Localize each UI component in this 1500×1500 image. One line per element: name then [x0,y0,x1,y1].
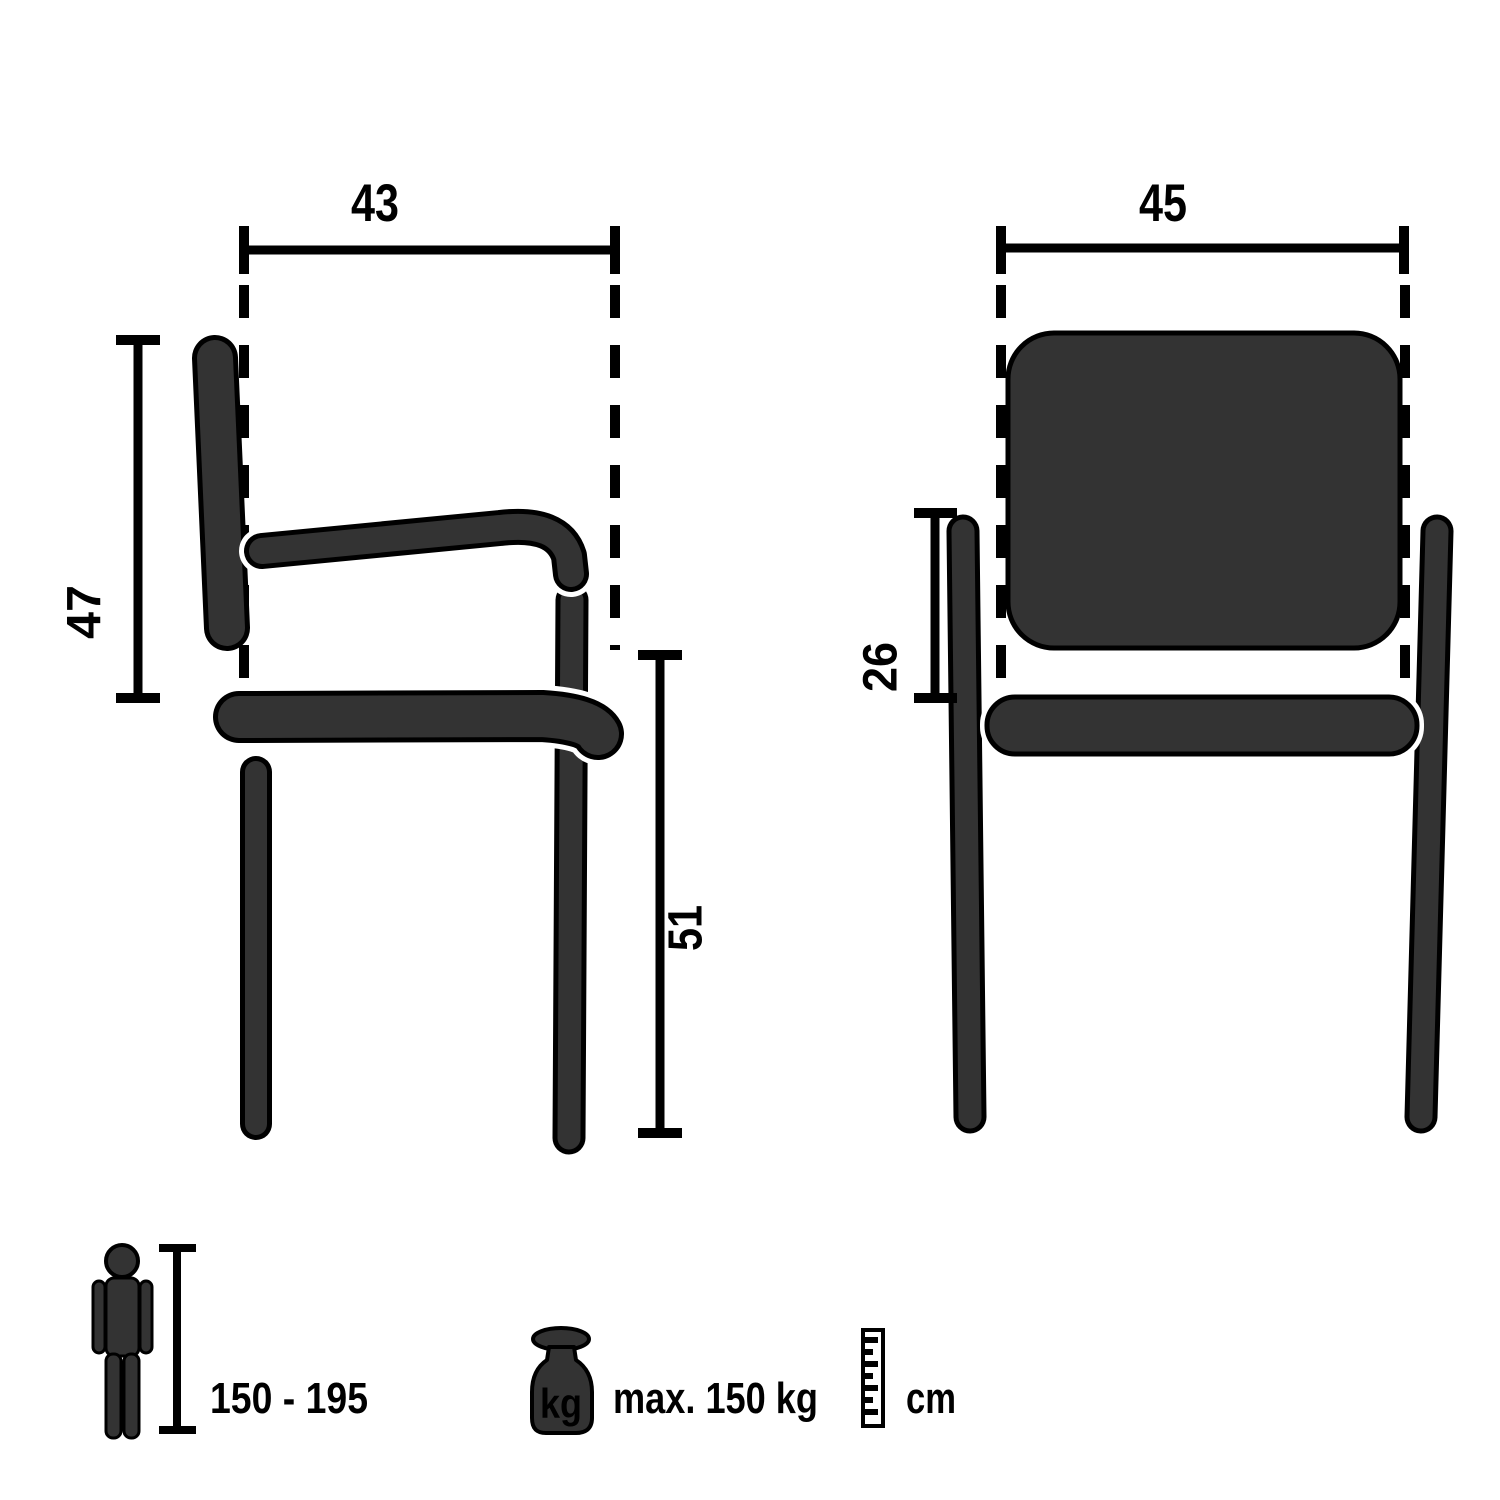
person-torso [106,1278,139,1356]
weight-icon: kg [532,1328,592,1433]
person-arm-left [93,1281,105,1353]
chair-dimension-diagram: 43 47 [0,0,1500,1500]
dim-person-height [159,1248,196,1430]
ruler-tick [865,1373,873,1379]
dim-label-backrest-height: 47 [59,585,112,639]
person-head [106,1245,138,1277]
dim-armrest-height: 26 [855,513,958,698]
rear-leg-fill [569,600,572,1138]
front-view: 45 26 [855,174,1438,1117]
right-bar-fill [1421,531,1437,1117]
chair-rear-leg-side [569,600,572,1138]
chair-backrest-side [215,358,227,628]
side-view: 43 47 [59,174,713,1138]
dim-label-seat-width: 45 [1139,174,1187,233]
measure-unit-label: cm [906,1374,956,1423]
chair-armrest-side [262,527,571,574]
dim-seat-depth: 43 [244,174,615,274]
chair-right-bar-front [1421,531,1437,1117]
ruler-tick [865,1397,873,1403]
ruler-tick [865,1385,878,1391]
diagram-canvas: 43 47 [0,0,1500,1500]
weight-unit-label: kg [540,1380,582,1427]
ruler-tick [865,1349,873,1355]
ruler-tick [865,1361,878,1367]
chair-seat-side [239,716,598,734]
dim-seat-height: 51 [638,655,713,1133]
ruler-icon [863,1330,883,1426]
person-height-range-label: 150 - 195 [210,1374,368,1423]
left-bar-fill [963,531,970,1117]
legend: 150 - 195 kg max. 150 kg cm [93,1245,956,1438]
ruler-tick [865,1337,878,1343]
dim-seat-width: 45 [1001,174,1404,274]
person-leg-left [106,1354,121,1438]
chair-left-bar-front [963,531,970,1117]
chair-seat-front [980,690,1424,761]
dim-label-seat-depth: 43 [351,174,399,233]
seat-fill [239,716,598,734]
ruler-tick [865,1409,878,1415]
dim-label-seat-height: 51 [660,905,713,951]
person-leg-right [124,1354,139,1438]
seat-fill [987,697,1417,754]
person-arm-right [140,1281,152,1353]
dim-backrest-height: 47 [59,340,161,698]
chair-backrest-front [1008,333,1400,648]
max-load-label: max. 150 kg [613,1374,818,1423]
person-icon [93,1245,152,1438]
dim-label-armrest-height: 26 [855,642,908,692]
backrest-fill [215,358,227,628]
